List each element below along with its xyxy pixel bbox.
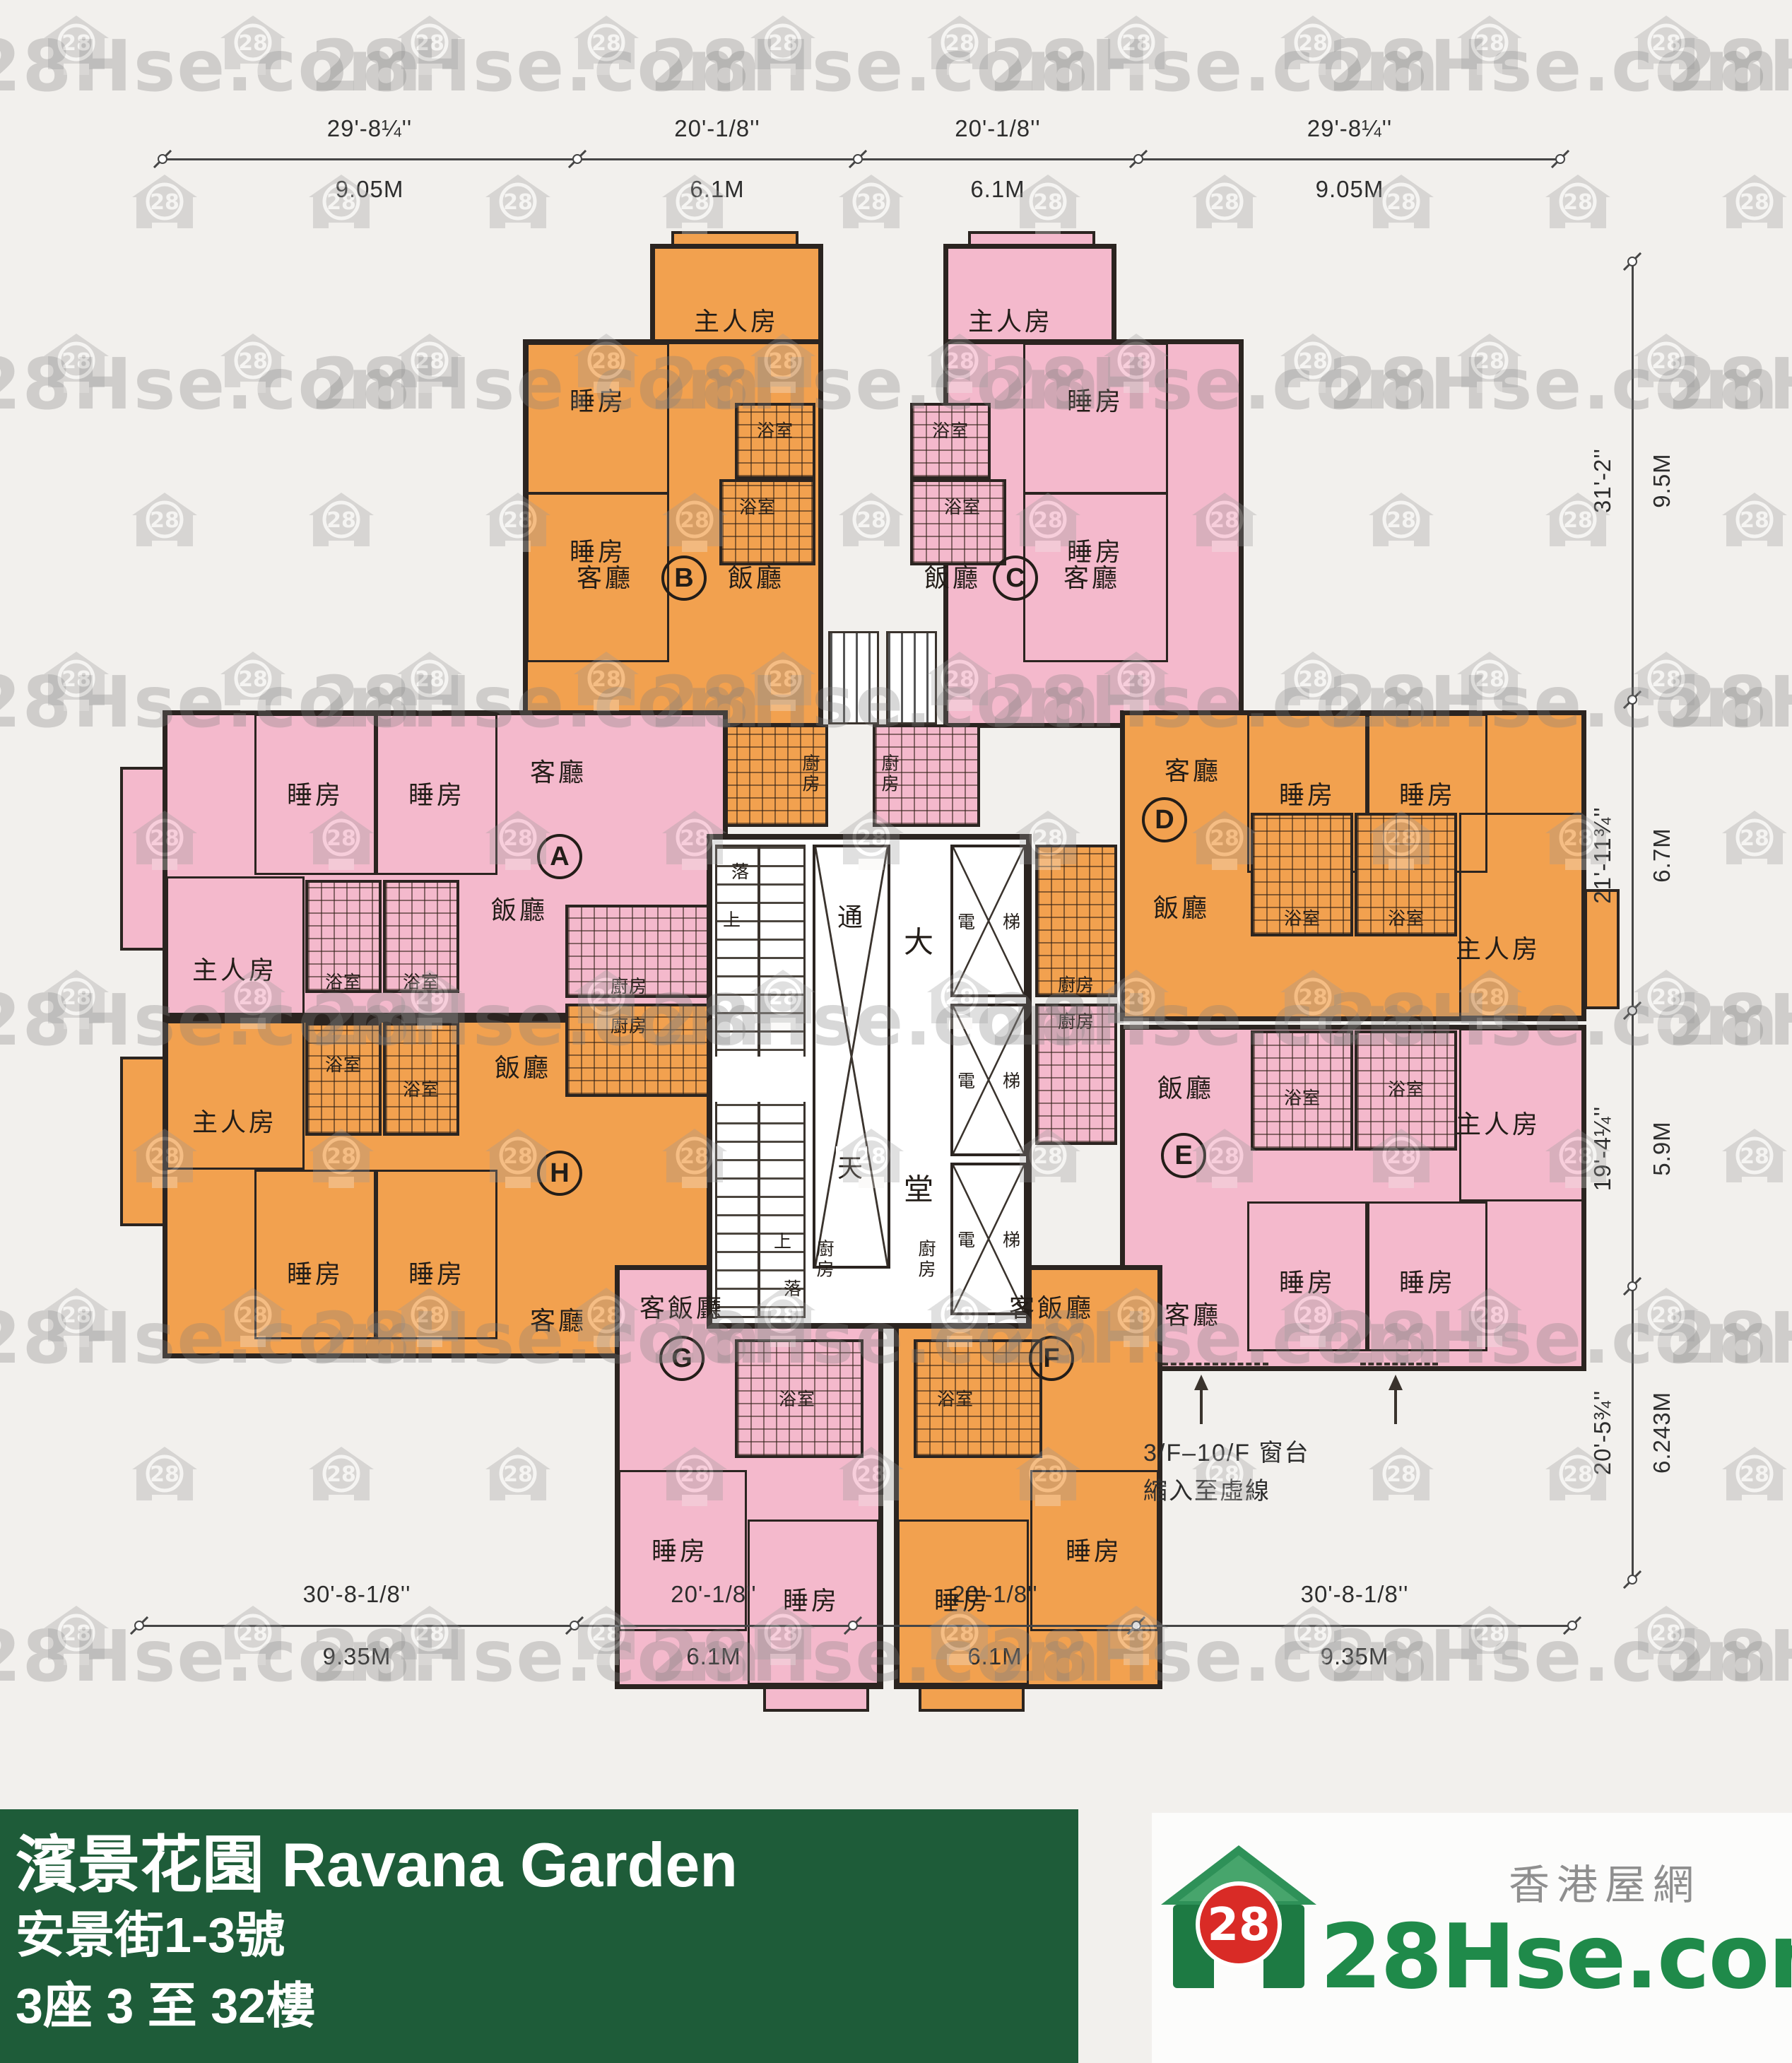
- stair-down-label: 落: [784, 1275, 802, 1300]
- svg-text:28: 28: [238, 349, 268, 374]
- lobby-label-top: 大: [904, 919, 936, 962]
- unit-c-bay: [968, 231, 1095, 247]
- stair-up-label: 上: [774, 1228, 792, 1253]
- watermark-text: 28Hse.com: [0, 343, 423, 425]
- room-label-bath-b2: 浴室: [739, 493, 776, 519]
- unit-b-bed1-room: [526, 343, 669, 494]
- light-well-label-bottom: 天: [836, 1146, 867, 1186]
- room-label-dining-d: 飯廳: [1153, 888, 1210, 924]
- watermark-text: 28Hse.com: [989, 25, 1440, 107]
- watermark-house-icon: 28: [131, 1445, 199, 1511]
- room-label-kitchen-d: 廚房: [1058, 971, 1095, 997]
- room-label-bed-h2: 睡房: [408, 1254, 465, 1291]
- unit-c-bath2: [910, 479, 1006, 565]
- svg-text:28: 28: [503, 190, 533, 215]
- svg-text:28: 28: [1386, 190, 1416, 215]
- dim-top-3-ft: 20'-1/8'': [955, 115, 1040, 142]
- room-label-dining-h: 飯廳: [495, 1047, 551, 1084]
- watermark-house-icon: 28: [396, 650, 464, 716]
- svg-text:28: 28: [1651, 31, 1681, 56]
- svg-text:28: 28: [1386, 508, 1416, 533]
- dim-dot: [570, 1621, 579, 1630]
- room-label-living-b: 客廳: [577, 558, 633, 594]
- room-label-bed-d1: 睡房: [1279, 775, 1336, 811]
- dim-bottom-1-ft: 30'-8-1/8'': [303, 1581, 411, 1608]
- watermark-text: 28Hse.com: [1668, 1615, 1792, 1698]
- bay-dashed-line: [1162, 1363, 1268, 1365]
- dim-right-4-ft: 20'-5¾'': [1589, 1390, 1616, 1475]
- svg-text:28: 28: [1740, 190, 1769, 215]
- watermark-house-icon: 28: [1456, 650, 1523, 716]
- room-label-livingdining-g: 客飯廳: [639, 1288, 724, 1324]
- unit-h-master-room: [166, 1021, 305, 1170]
- dim-dot: [1627, 1006, 1637, 1016]
- room-label-kitchen-b: 廚房: [801, 753, 821, 794]
- logo-badge-number: 28: [1207, 1899, 1270, 1951]
- room-label-bed-f2: 睡房: [934, 1580, 991, 1617]
- room-label-bath-c2: 浴室: [944, 493, 981, 519]
- room-label-bath-a2: 浴室: [403, 968, 440, 994]
- watermark-house-icon: 28: [307, 1445, 375, 1511]
- watermark-text: 28Hse.com: [650, 25, 1101, 107]
- dim-dot: [134, 1621, 144, 1630]
- annotation-arrow: [1386, 1375, 1405, 1428]
- room-label-bed-b1: 睡房: [570, 381, 626, 418]
- svg-text:28: 28: [238, 31, 268, 56]
- dim-dot: [1627, 695, 1637, 705]
- room-label-bed-g2: 睡房: [783, 1580, 839, 1617]
- dim-top-3-m: 6.1M: [970, 176, 1025, 203]
- watermark-house-icon: 28: [1632, 332, 1700, 398]
- watermark-text: 28Hse.com: [1328, 343, 1779, 425]
- svg-text:28: 28: [150, 1462, 179, 1487]
- dim-dot: [158, 154, 167, 164]
- dim-right-3-ft: 19'-4¼'': [1589, 1106, 1616, 1191]
- watermark-house-icon: 28: [42, 968, 110, 1034]
- bay-dashed-line: [1360, 1363, 1438, 1365]
- watermark-house-icon: 28: [1191, 173, 1258, 239]
- room-label-bed-e1: 睡房: [1279, 1262, 1336, 1299]
- svg-text:28: 28: [1475, 667, 1504, 692]
- watermark-house-icon: 28: [484, 1445, 552, 1511]
- unit-d-master-room: [1459, 813, 1584, 1018]
- room-label-bath-f: 浴室: [937, 1385, 974, 1411]
- room-label-dining-c: 飯廳: [924, 558, 981, 594]
- svg-text:28: 28: [503, 1462, 533, 1487]
- dim-right-4-m: 6.243M: [1649, 1392, 1675, 1474]
- watermark-house-icon: 28: [1279, 650, 1347, 716]
- dim-dot: [853, 154, 863, 164]
- svg-text:28: 28: [1651, 1621, 1681, 1646]
- svg-text:28: 28: [1563, 508, 1593, 533]
- dim-bottom-1-m: 9.35M: [323, 1643, 391, 1670]
- logo-site-name-en: 28Hse.com: [1320, 1905, 1792, 2009]
- room-label-bed-e2: 睡房: [1399, 1262, 1456, 1299]
- watermark-house-icon: 28: [307, 491, 375, 557]
- watermark-house-icon: 28: [219, 14, 287, 80]
- svg-text:28: 28: [1740, 508, 1769, 533]
- room-label-dining-a: 飯廳: [491, 890, 548, 927]
- watermark-house-icon: 28: [926, 14, 994, 80]
- dim-top-1-ft: 29'-8¼'': [327, 115, 412, 142]
- dim-dot: [1627, 1281, 1637, 1291]
- svg-text:28: 28: [61, 31, 91, 56]
- svg-text:28: 28: [415, 349, 444, 374]
- dim-dot: [1555, 154, 1565, 164]
- dim-dot: [848, 1621, 858, 1630]
- unit-circle-h: H: [537, 1151, 582, 1196]
- unit-circle-d: D: [1142, 797, 1187, 842]
- svg-text:28: 28: [415, 667, 444, 692]
- svg-text:28: 28: [1298, 349, 1328, 374]
- watermark-text: 28Hse.com: [1668, 1297, 1792, 1380]
- unit-b-bath2: [719, 479, 815, 565]
- watermark-text: 28Hse.com: [1328, 1615, 1779, 1698]
- watermark-house-icon: 28: [1367, 491, 1435, 557]
- room-label-master-d: 主人房: [1456, 929, 1540, 965]
- svg-text:28: 28: [856, 508, 886, 533]
- room-label-bed-g1: 睡房: [652, 1531, 708, 1568]
- dim-right-3-m: 5.9M: [1649, 1121, 1675, 1175]
- dim-right-2-m: 6.7M: [1649, 828, 1675, 882]
- watermark-text: 28Hse.com: [1668, 661, 1792, 743]
- dim-right-2-ft: 21'-11¾'': [1589, 806, 1616, 903]
- watermark-house-icon: 28: [1721, 173, 1788, 239]
- watermark-house-icon: 28: [837, 173, 905, 239]
- dim-right-1-m: 9.5M: [1649, 453, 1675, 507]
- unit-h-bath1: [305, 1023, 382, 1136]
- svg-text:28: 28: [1651, 1303, 1681, 1328]
- room-label-living-c: 客廳: [1063, 558, 1120, 594]
- annotation-arrow: [1192, 1375, 1210, 1428]
- unit-h-bay: [120, 1057, 165, 1226]
- room-label-bed-c1: 睡房: [1067, 381, 1124, 418]
- svg-text:28: 28: [326, 1462, 356, 1487]
- room-label-livingdining-f: 客飯廳: [1009, 1288, 1094, 1324]
- unit-circle-a: A: [537, 834, 582, 879]
- watermark-text: 28Hse.com: [311, 25, 762, 107]
- room-label-bed-a1: 睡房: [287, 775, 343, 811]
- watermark-house-icon: 28: [1456, 1604, 1523, 1670]
- dim-dot: [1133, 154, 1143, 164]
- svg-text:28: 28: [415, 31, 444, 56]
- estate-title: 濱景花園 Ravana Garden: [16, 1815, 738, 1905]
- stair-up-label: 上: [723, 906, 741, 931]
- room-label-master-h: 主人房: [192, 1102, 277, 1139]
- dim-top-2-m: 6.1M: [690, 176, 744, 203]
- annotation-line1: 3/F–10/F 窗台: [1143, 1433, 1310, 1468]
- svg-text:28: 28: [326, 508, 356, 533]
- unit-f-bath: [914, 1339, 1042, 1458]
- svg-text:28: 28: [1475, 31, 1504, 56]
- room-label-bath-e2: 浴室: [1388, 1076, 1425, 1101]
- watermark-house-icon: 28: [1632, 650, 1700, 716]
- svg-text:28: 28: [945, 31, 974, 56]
- watermark-house-icon: 28: [1721, 809, 1788, 875]
- watermark-house-icon: 28: [131, 173, 199, 239]
- unit-circle-b: B: [661, 556, 707, 601]
- dim-dot: [1131, 1621, 1141, 1630]
- room-label-master-e: 主人房: [1456, 1104, 1540, 1141]
- lift-2-label-left: 電: [957, 1067, 976, 1093]
- svg-text:28: 28: [1651, 667, 1681, 692]
- vent-shaft: [886, 631, 937, 724]
- watermark-house-icon: 28: [1721, 491, 1788, 557]
- lift-3-label-left: 電: [957, 1226, 976, 1252]
- svg-text:28: 28: [1386, 1462, 1416, 1487]
- unit-a-bay: [120, 767, 165, 951]
- room-label-master-a: 主人房: [192, 950, 277, 987]
- watermark-house-icon: 28: [131, 491, 199, 557]
- svg-text:28: 28: [150, 190, 179, 215]
- vent-shaft: [828, 631, 879, 724]
- watermark-house-icon: 28: [484, 173, 552, 239]
- svg-text:28: 28: [1298, 31, 1328, 56]
- lobby-label-bottom: 堂: [904, 1166, 936, 1209]
- watermark-house-icon: 28: [1721, 1445, 1788, 1511]
- room-label-bath-g: 浴室: [779, 1385, 815, 1411]
- watermark-house-icon: 28: [1456, 332, 1523, 398]
- watermark-text: 28Hse.com: [1668, 343, 1792, 425]
- stair-down-label: 落: [731, 858, 750, 883]
- watermark-house-icon: 28: [1632, 968, 1700, 1034]
- logo-site-name-cn: 香港屋網: [1509, 1852, 1701, 1911]
- lift-1-label-right: 梯: [1003, 908, 1021, 934]
- svg-text:28: 28: [1651, 349, 1681, 374]
- watermark-house-icon: 28: [1102, 14, 1170, 80]
- room-label-living-a: 客廳: [530, 752, 586, 789]
- svg-text:28: 28: [61, 349, 91, 374]
- estate-address: 安景街1-3號: [16, 1896, 285, 1967]
- watermark-house-icon: 28: [42, 14, 110, 80]
- watermark-text: 28Hse.com: [1668, 25, 1792, 107]
- svg-text:28: 28: [1740, 826, 1769, 851]
- dim-top-1-m: 9.05M: [336, 176, 404, 203]
- svg-text:28: 28: [150, 508, 179, 533]
- room-label-living-e: 客廳: [1165, 1295, 1221, 1332]
- room-label-dining-b: 飯廳: [728, 558, 784, 594]
- watermark-house-icon: 28: [1721, 1127, 1788, 1193]
- svg-text:28: 28: [1033, 190, 1063, 215]
- room-label-bath-a1: 浴室: [325, 968, 362, 994]
- svg-text:28: 28: [1563, 1462, 1593, 1487]
- room-label-master-c: 主人房: [968, 301, 1053, 338]
- room-label-bath-h2: 浴室: [403, 1076, 440, 1101]
- svg-text:28: 28: [768, 31, 798, 56]
- light-well-label-top: 通: [836, 895, 867, 935]
- svg-text:28: 28: [1563, 190, 1593, 215]
- svg-text:28: 28: [1121, 31, 1151, 56]
- dim-top-4-ft: 29'-8¼'': [1307, 115, 1392, 142]
- watermark-house-icon: 28: [219, 332, 287, 398]
- unit-b-bay: [671, 231, 798, 247]
- svg-text:28: 28: [238, 667, 268, 692]
- watermark-house-icon: 28: [396, 332, 464, 398]
- watermark-house-icon: 28: [1279, 14, 1347, 80]
- watermark-text: 28Hse.com: [1668, 979, 1792, 1062]
- room-label-bath-e1: 浴室: [1284, 1084, 1321, 1110]
- room-label-kitchen-a: 廚房: [611, 972, 647, 998]
- stair-landing: [715, 1057, 806, 1102]
- room-label-kitchen-e: 廚房: [1058, 1008, 1095, 1033]
- watermark-house-icon: 28: [42, 1604, 110, 1670]
- watermark-house-icon: 28: [749, 14, 817, 80]
- svg-text:28: 28: [61, 1303, 91, 1328]
- room-label-living-h: 客廳: [530, 1300, 586, 1337]
- svg-text:28: 28: [1210, 190, 1239, 215]
- dim-bottom-4-ft: 30'-8-1/8'': [1301, 1581, 1409, 1608]
- unit-d-bay: [1584, 889, 1620, 1009]
- dim-dot: [1627, 257, 1637, 266]
- watermark-house-icon: 28: [1632, 1604, 1700, 1670]
- svg-text:28: 28: [1475, 349, 1504, 374]
- unit-circle-g: G: [659, 1336, 705, 1381]
- watermark-house-icon: 28: [837, 491, 905, 557]
- unit-f-bay: [919, 1686, 1025, 1712]
- room-label-bath-b1: 浴室: [757, 417, 794, 442]
- room-label-bed-f1: 睡房: [1066, 1531, 1122, 1568]
- watermark-house-icon: 28: [1632, 1286, 1700, 1352]
- svg-text:28: 28: [61, 667, 91, 692]
- dim-top-4-m: 9.05M: [1316, 176, 1384, 203]
- room-label-bath-h1: 浴室: [325, 1051, 362, 1076]
- room-label-kitchen-g: 廚房: [815, 1239, 835, 1280]
- room-label-kitchen-f: 廚房: [917, 1239, 937, 1280]
- room-label-dining-e: 飯廳: [1157, 1068, 1214, 1105]
- svg-text:28: 28: [1298, 667, 1328, 692]
- dim-bottom-2-m: 6.1M: [686, 1643, 741, 1670]
- site-logo: 28 香港屋網 28Hse.com: [1152, 1813, 1792, 2063]
- watermark-house-icon: 28: [42, 1286, 110, 1352]
- dim-right-1-ft: 31'-2'': [1589, 448, 1616, 513]
- watermark-text: 28Hse.com: [1328, 25, 1779, 107]
- svg-text:28: 28: [1740, 1144, 1769, 1169]
- lift-1-label-left: 電: [957, 908, 976, 934]
- watermark-house-icon: 28: [1544, 173, 1612, 239]
- floor-plan-page: 落 上 上 落 通 天 大 堂 電 梯 電 梯 電 梯 主人房 睡房 睡房 浴室…: [0, 0, 1792, 2063]
- room-label-bed-d2: 睡房: [1399, 775, 1456, 811]
- dim-dot: [1567, 1621, 1577, 1630]
- svg-text:28: 28: [1651, 985, 1681, 1010]
- svg-text:28: 28: [856, 190, 886, 215]
- dim-top-2-ft: 20'-1/8'': [674, 115, 760, 142]
- footer-title-bar: 濱景花園 Ravana Garden 安景街1-3號 3座 3 至 32樓: [0, 1809, 1078, 2063]
- annotation-line2: 縮入至虛線: [1143, 1471, 1271, 1506]
- svg-text:28: 28: [1740, 1462, 1769, 1487]
- dim-dot: [572, 154, 582, 164]
- lift-3-label-right: 梯: [1003, 1226, 1021, 1252]
- dim-bottom-2-ft: 20'-1/8'': [671, 1581, 756, 1608]
- watermark-house-icon: 28: [1367, 1445, 1435, 1511]
- watermark-house-icon: 28: [396, 14, 464, 80]
- house-logo-icon: 28: [1157, 1841, 1320, 2011]
- watermark-house-icon: 28: [42, 650, 110, 716]
- watermark-house-icon: 28: [1456, 14, 1523, 80]
- svg-text:28: 28: [591, 31, 621, 56]
- unit-c-bed1-room: [1023, 343, 1168, 494]
- room-label-bath-c1: 浴室: [932, 417, 969, 442]
- room-label-kitchen-h: 廚房: [611, 1012, 647, 1038]
- watermark-house-icon: 28: [396, 1604, 464, 1670]
- svg-text:28: 28: [61, 1621, 91, 1646]
- svg-text:28: 28: [1033, 1144, 1063, 1169]
- unit-circle-c: C: [993, 556, 1038, 601]
- room-label-bed-h1: 睡房: [287, 1254, 343, 1291]
- watermark-house-icon: 28: [219, 1604, 287, 1670]
- room-label-living-d: 客廳: [1165, 751, 1221, 787]
- room-label-bed-a2: 睡房: [408, 775, 465, 811]
- watermark-house-icon: 28: [1632, 14, 1700, 80]
- dim-bottom-3-m: 6.1M: [967, 1643, 1022, 1670]
- room-label-kitchen-c: 廚房: [880, 753, 900, 794]
- dim-dot: [1627, 1575, 1637, 1585]
- room-label-bath-d2: 浴室: [1388, 905, 1425, 930]
- dim-line-right: [1632, 261, 1634, 1580]
- unit-circle-e: E: [1161, 1133, 1206, 1178]
- estate-block-floors: 3座 3 至 32樓: [16, 1966, 315, 2038]
- watermark-house-icon: 28: [572, 14, 640, 80]
- svg-text:28: 28: [61, 985, 91, 1010]
- dim-bottom-4-m: 9.35M: [1321, 1643, 1389, 1670]
- unit-a-master-room: [166, 876, 305, 1015]
- watermark-house-icon: 28: [1279, 332, 1347, 398]
- watermark-house-icon: 28: [42, 332, 110, 398]
- unit-circle-f: F: [1029, 1336, 1074, 1381]
- watermark-house-icon: 28: [219, 650, 287, 716]
- unit-g-bay: [763, 1686, 869, 1712]
- room-label-master-b: 主人房: [694, 301, 779, 338]
- lift-2-label-right: 梯: [1003, 1067, 1021, 1093]
- room-label-bath-d1: 浴室: [1284, 905, 1321, 930]
- watermark-text: 28Hse.com: [0, 25, 423, 107]
